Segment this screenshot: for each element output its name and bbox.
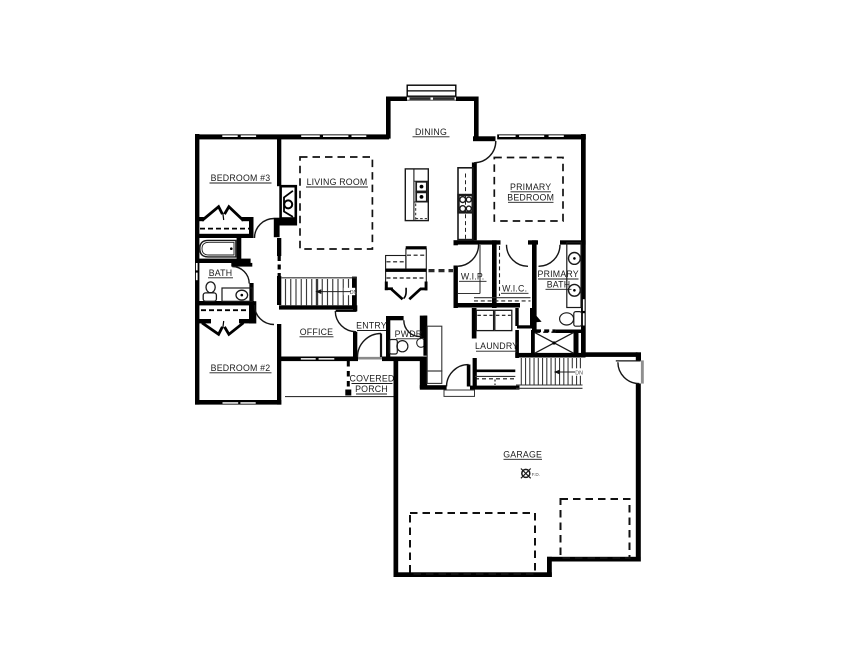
svg-text:BATH: BATH (209, 268, 233, 278)
svg-text:BEDROOM: BEDROOM (507, 192, 554, 202)
svg-text:DN: DN (350, 290, 358, 296)
svg-text:DINING: DINING (415, 127, 447, 137)
svg-text:PRIMARY: PRIMARY (538, 269, 579, 279)
svg-text:W.I.C.: W.I.C. (502, 283, 527, 293)
svg-text:OFFICE: OFFICE (300, 327, 333, 337)
svg-text:DN: DN (575, 370, 583, 376)
svg-text:ENTRY: ENTRY (356, 321, 387, 331)
svg-text:COVERED: COVERED (350, 374, 395, 384)
svg-text:BEDROOM #3: BEDROOM #3 (211, 173, 271, 183)
svg-text:LAUNDRY: LAUNDRY (475, 341, 518, 351)
svg-text:PORCH: PORCH (355, 384, 388, 394)
svg-text:F.D.: F.D. (532, 472, 540, 477)
svg-text:BEDROOM #2: BEDROOM #2 (211, 363, 271, 373)
svg-text:PRIMARY: PRIMARY (510, 182, 551, 192)
svg-text:W.I.P.: W.I.P. (461, 271, 485, 281)
svg-text:LIVING ROOM: LIVING ROOM (307, 177, 368, 187)
svg-text:BATH: BATH (547, 279, 571, 289)
svg-text:PWDR: PWDR (395, 329, 423, 339)
svg-text:GARAGE: GARAGE (503, 449, 542, 459)
